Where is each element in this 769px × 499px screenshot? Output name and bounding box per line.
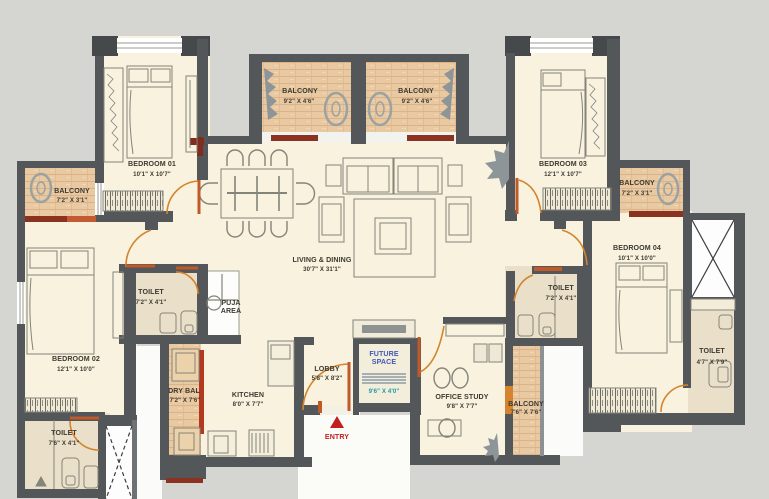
- svg-text:FUTURE: FUTURE: [369, 350, 399, 358]
- svg-text:5'8" X 8'2": 5'8" X 8'2": [312, 375, 343, 382]
- svg-text:10'1" X 10'7": 10'1" X 10'7": [133, 171, 171, 178]
- svg-text:7'2" X 4'1": 7'2" X 4'1": [546, 295, 577, 302]
- svg-text:7'2" X 4'1": 7'2" X 4'1": [136, 299, 167, 306]
- svg-text:AREA: AREA: [221, 307, 242, 315]
- svg-text:BALCONY: BALCONY: [282, 87, 318, 95]
- svg-text:DRY BAL: DRY BAL: [168, 387, 200, 395]
- svg-text:TOILET: TOILET: [51, 429, 77, 437]
- svg-text:ENTRY: ENTRY: [325, 433, 349, 441]
- svg-text:KITCHEN: KITCHEN: [232, 391, 264, 399]
- svg-text:BEDROOM 04: BEDROOM 04: [613, 244, 661, 252]
- svg-text:7'2" X 3'1": 7'2" X 3'1": [622, 190, 653, 197]
- svg-text:7'2" X 3'1": 7'2" X 3'1": [57, 197, 88, 204]
- svg-text:BEDROOM 03: BEDROOM 03: [539, 160, 587, 168]
- svg-text:9'2" X 4'6": 9'2" X 4'6": [284, 98, 315, 105]
- svg-text:7'2" X 7'6": 7'2" X 7'6": [170, 397, 201, 404]
- svg-text:BEDROOM 02: BEDROOM 02: [52, 355, 100, 363]
- svg-text:12'1" X 10'0": 12'1" X 10'0": [57, 366, 95, 373]
- svg-text:7'6" X 7'6": 7'6" X 7'6": [511, 409, 542, 416]
- svg-text:LOBBY: LOBBY: [314, 365, 339, 373]
- svg-text:12'1" X 10'7": 12'1" X 10'7": [544, 171, 582, 178]
- svg-text:30'7" X 31'1": 30'7" X 31'1": [303, 266, 341, 273]
- svg-text:BALCONY: BALCONY: [619, 179, 655, 187]
- svg-text:TOILET: TOILET: [548, 284, 574, 292]
- svg-text:PUJA: PUJA: [221, 299, 240, 307]
- svg-text:BALCONY: BALCONY: [54, 187, 90, 195]
- svg-text:LIVING & DINING: LIVING & DINING: [292, 256, 351, 264]
- svg-text:BALCONY: BALCONY: [398, 87, 434, 95]
- svg-text:10'1" X 10'0": 10'1" X 10'0": [618, 255, 656, 262]
- svg-text:9'8" X 7'7": 9'8" X 7'7": [447, 403, 478, 410]
- svg-text:9'2" X 4'6": 9'2" X 4'6": [402, 98, 433, 105]
- svg-text:SPACE: SPACE: [372, 358, 397, 366]
- svg-text:BEDROOM 01: BEDROOM 01: [128, 160, 176, 168]
- svg-text:TOILET: TOILET: [138, 288, 164, 296]
- svg-text:7'6" X 4'1": 7'6" X 4'1": [49, 440, 80, 447]
- svg-text:TOILET: TOILET: [699, 347, 725, 355]
- svg-text:BALCONY: BALCONY: [508, 400, 544, 408]
- svg-text:8'0" X 7'7": 8'0" X 7'7": [233, 401, 264, 408]
- svg-text:4'7" X 7'9": 4'7" X 7'9": [697, 359, 728, 366]
- svg-text:OFFICE STUDY: OFFICE STUDY: [435, 393, 488, 401]
- svg-text:9'6" X 4'0": 9'6" X 4'0": [369, 388, 400, 395]
